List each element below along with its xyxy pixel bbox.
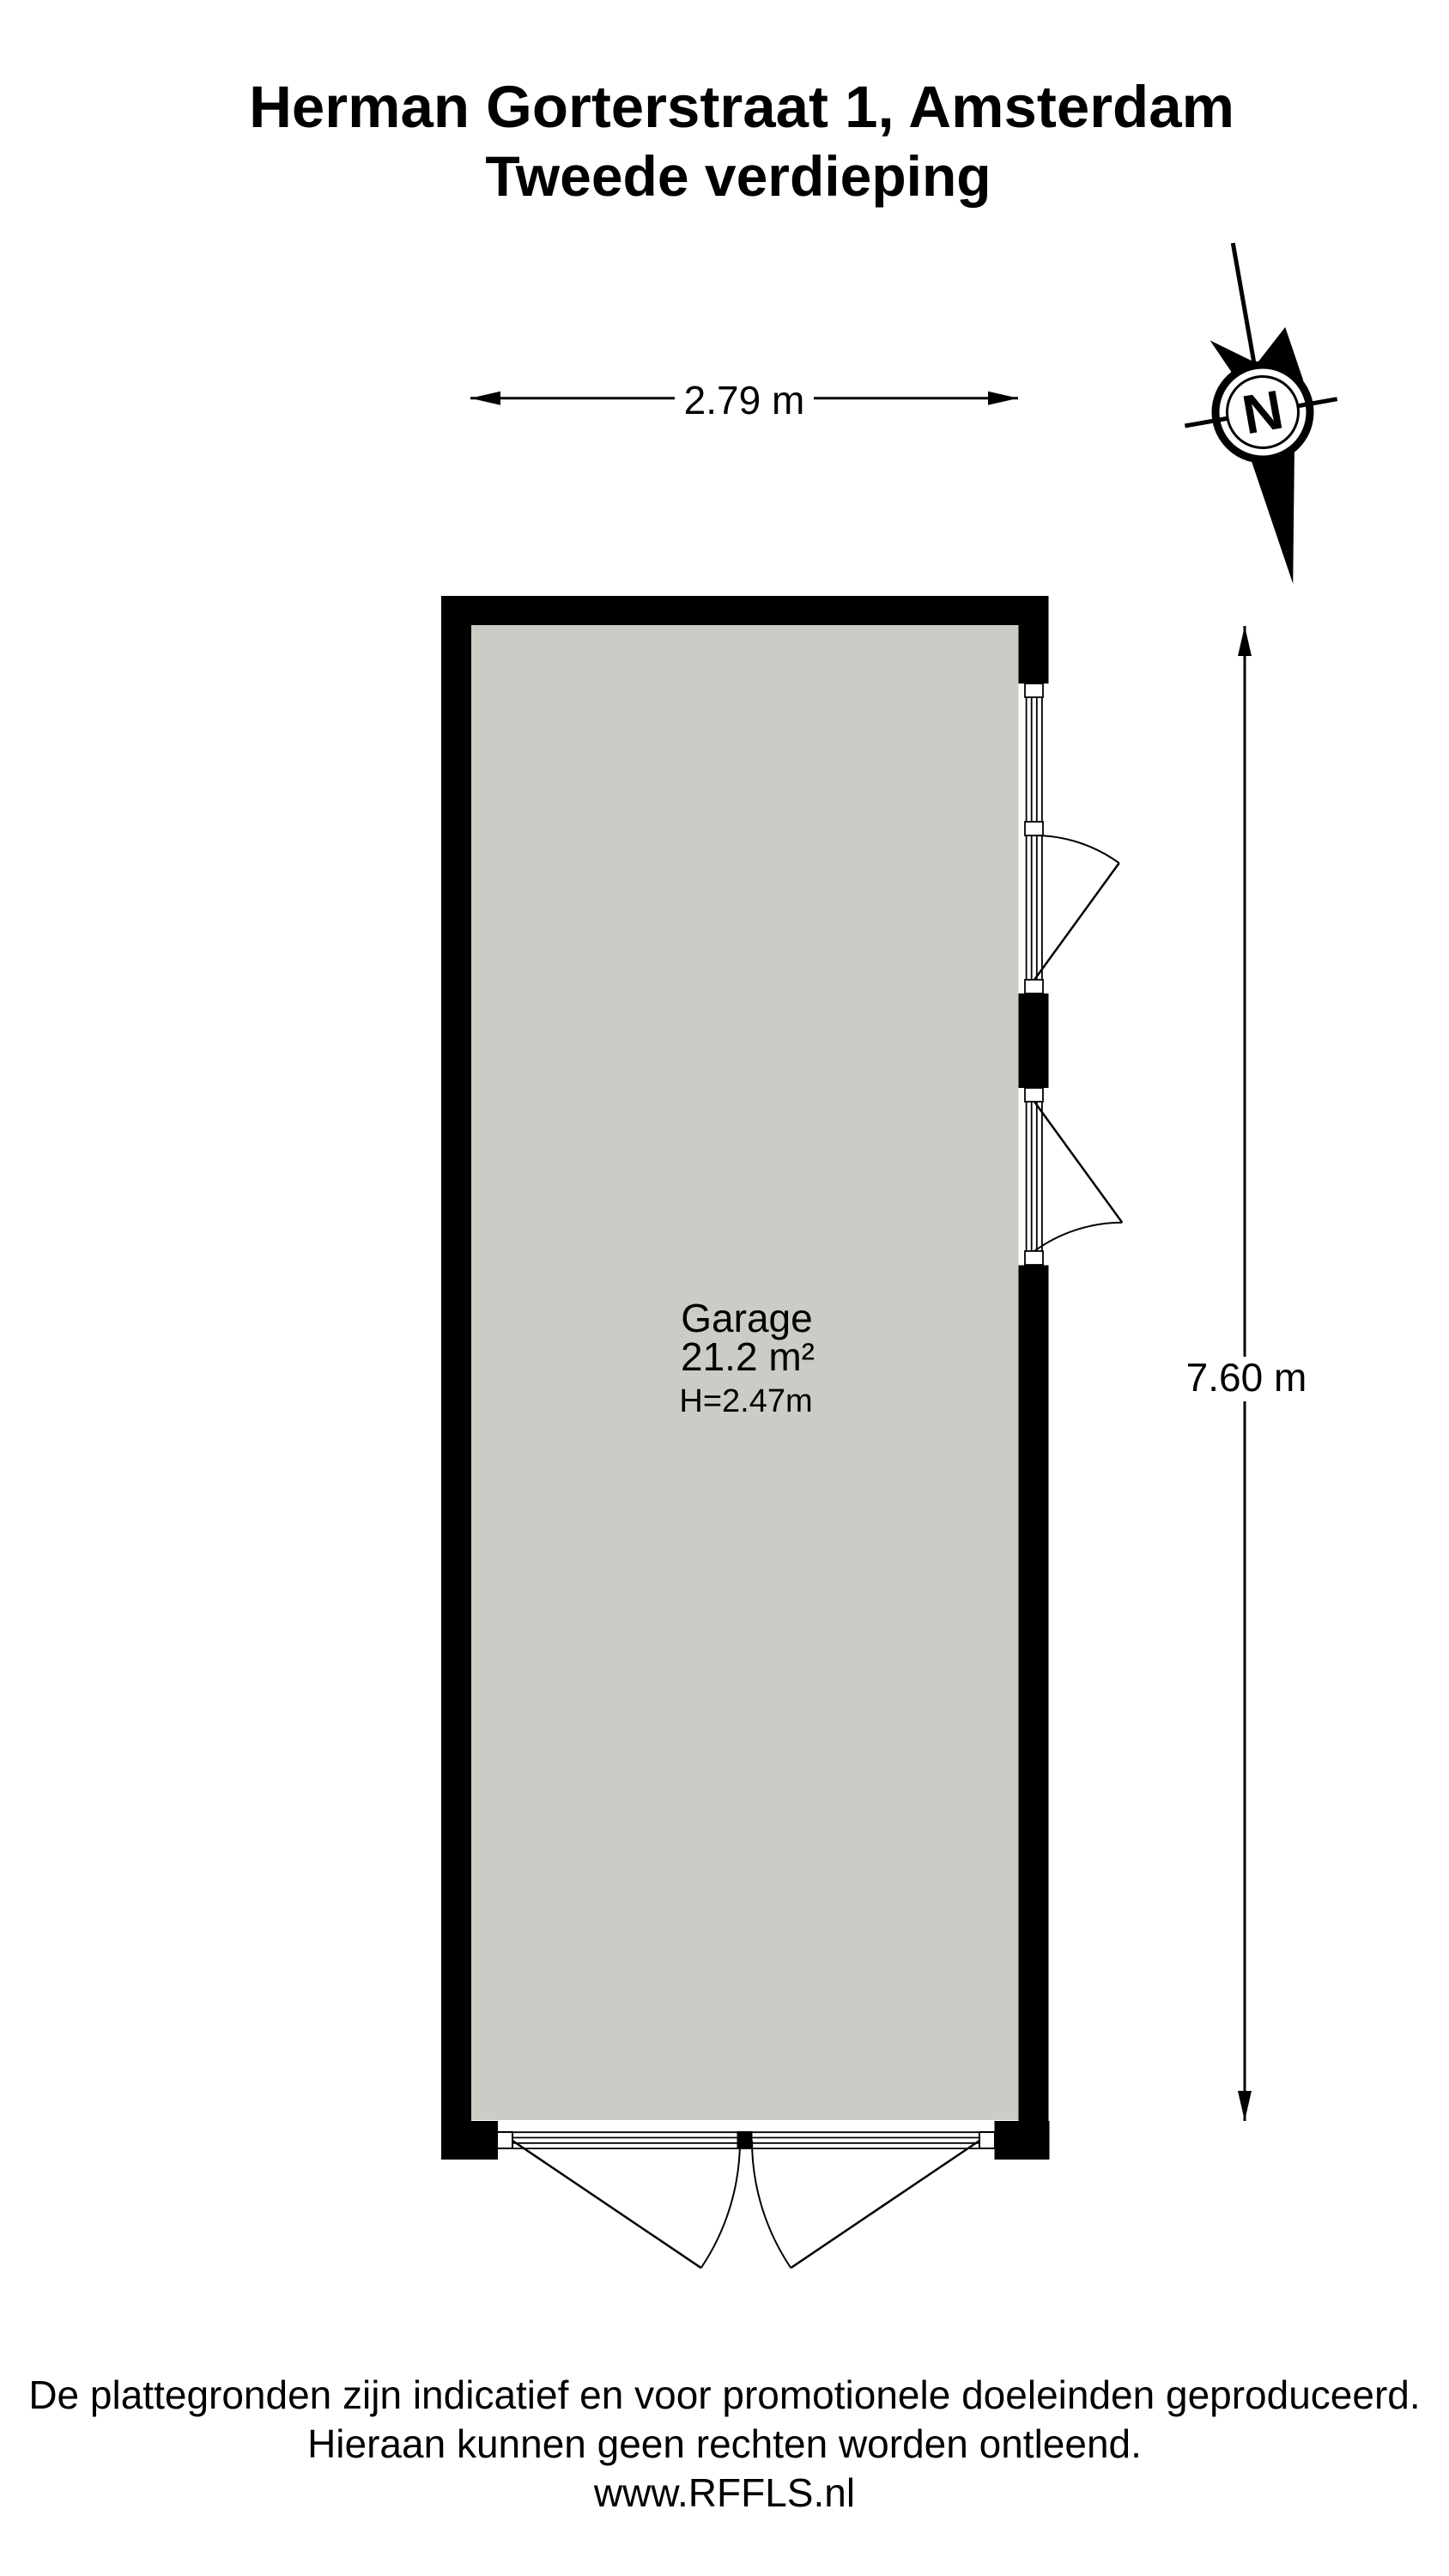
svg-text:Hieraan kunnen geen rechten wo: Hieraan kunnen geen rechten worden ontle…: [307, 2421, 1142, 2466]
svg-text:De plattegronden zijn indicati: De plattegronden zijn indicatief en voor…: [28, 2372, 1420, 2417]
svg-text:2.79 m: 2.79 m: [684, 378, 805, 422]
svg-text:www.RFFLS.nl: www.RFFLS.nl: [593, 2470, 855, 2515]
svg-text:H=2.47m: H=2.47m: [679, 1383, 812, 1419]
svg-text:Herman Gorterstraat 1, Amsterd: Herman Gorterstraat 1, Amsterdam: [249, 74, 1234, 140]
svg-text:21.2 m²: 21.2 m²: [681, 1334, 815, 1379]
svg-text:7.60 m: 7.60 m: [1186, 1355, 1307, 1400]
svg-text:Tweede verdieping: Tweede verdieping: [485, 144, 991, 208]
